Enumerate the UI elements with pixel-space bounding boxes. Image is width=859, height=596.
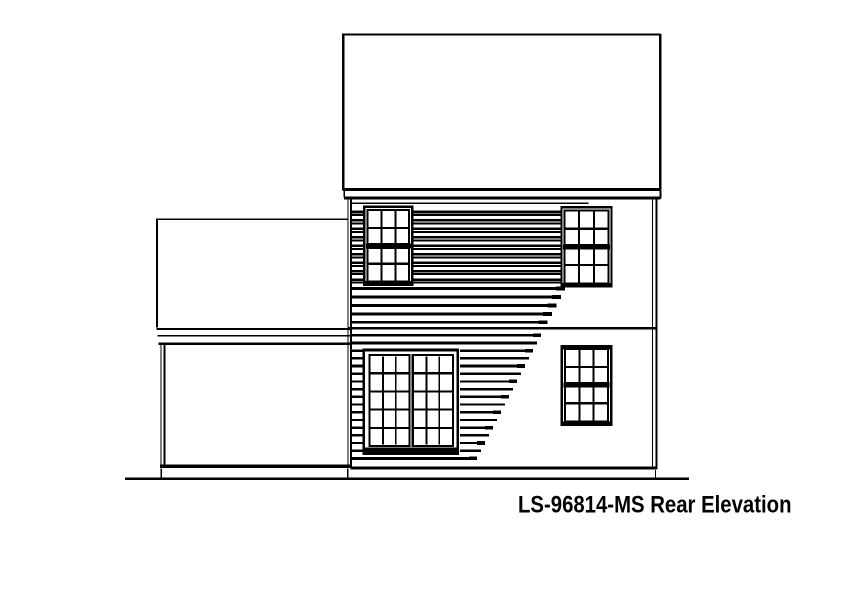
svg-text:LS-96814-MS Rear Elevation: LS-96814-MS Rear Elevation (518, 491, 792, 518)
